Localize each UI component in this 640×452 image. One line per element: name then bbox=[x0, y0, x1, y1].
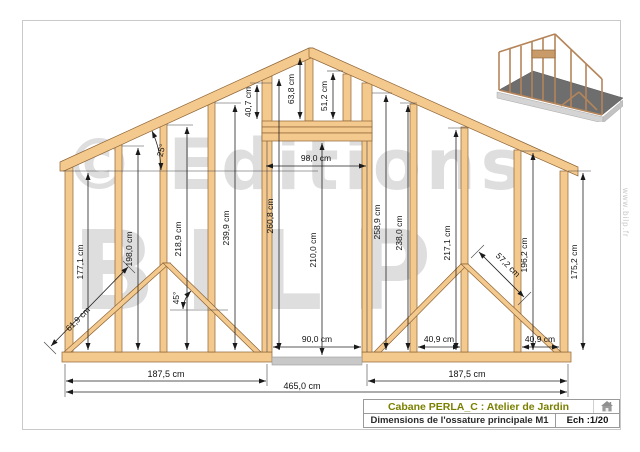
dim-label-jamb-extension: 40,7 cm bbox=[243, 87, 253, 117]
dim-label-door-width: 90,0 cm bbox=[302, 334, 332, 344]
dim-label-stud6: 217,1 cm bbox=[442, 226, 452, 261]
dim-label-bottom-left: 187,5 cm bbox=[147, 369, 184, 379]
dim-label-bottom-total: 465,0 cm bbox=[283, 381, 320, 391]
dim-label-spacing-2: 40,9 cm bbox=[525, 334, 555, 344]
rafter-left bbox=[60, 48, 313, 171]
bottom-plate-right bbox=[362, 352, 571, 362]
stud-3 bbox=[208, 102, 215, 352]
bottom-plate-left bbox=[62, 352, 272, 362]
door-sill bbox=[272, 357, 362, 365]
dim-label-header-span: 98,0 cm bbox=[301, 153, 331, 163]
dim-label-stud3: 218,9 cm bbox=[173, 222, 183, 257]
drawing-title: Dimensions de l'ossature principale M1 bbox=[364, 414, 556, 427]
dim-label-gable-right-stud: 51,2 cm bbox=[319, 81, 329, 111]
stud-1 bbox=[115, 145, 122, 352]
dim-label-stud1: 177,1 cm bbox=[75, 245, 85, 280]
dim-label-bottom-right: 187,5 cm bbox=[448, 369, 485, 379]
door-header-board-3 bbox=[262, 133, 372, 141]
title-block: Cabane PERLA_C : Atelier de Jardin Dimen… bbox=[363, 399, 620, 428]
door-header-board-1 bbox=[262, 121, 372, 127]
angle-label-brace: 45° bbox=[171, 292, 181, 305]
dim-label-stud4: 239,9 cm bbox=[221, 211, 231, 246]
website-watermark: www.bilp.fr bbox=[621, 188, 630, 238]
3d-door-header bbox=[532, 50, 555, 58]
title-block-row-drawing: Dimensions de l'ossature principale M1 E… bbox=[364, 414, 619, 427]
title-block-row-project: Cabane PERLA_C : Atelier de Jardin bbox=[364, 400, 619, 414]
project-title: Cabane PERLA_C : Atelier de Jardin bbox=[364, 401, 593, 413]
dim-label-stud2: 198,0 cm bbox=[124, 232, 134, 267]
3d-perspective-view bbox=[483, 22, 623, 122]
stud-end-right bbox=[560, 171, 568, 352]
dim-label-door-king-right: 258,9 cm bbox=[372, 205, 382, 240]
door-header-board-2 bbox=[262, 127, 372, 133]
dim-label-stud7: 196,2 cm bbox=[519, 238, 529, 273]
dim-label-door-king-left: 260,8 cm bbox=[265, 199, 275, 234]
dim-label-king-stud: 63,8 cm bbox=[286, 74, 296, 104]
3d-frame-members bbox=[499, 34, 602, 115]
plan-page: © Editions BILP bbox=[0, 0, 640, 452]
dim-label-door-height: 210,0 cm bbox=[308, 233, 318, 268]
dim-label-stud5: 238,0 cm bbox=[394, 216, 404, 251]
dim-label-end-stud-right: 175,2 cm bbox=[569, 245, 579, 280]
house-logo-icon bbox=[600, 401, 614, 412]
dim-label-spacing-1: 40,9 cm bbox=[424, 334, 454, 344]
title-block-icon-cell bbox=[593, 400, 619, 413]
gable-right-stud bbox=[343, 74, 351, 121]
stud-6 bbox=[461, 127, 468, 352]
gable-king-stud bbox=[305, 54, 313, 121]
scale-label: Ech :1/20 bbox=[556, 414, 619, 427]
